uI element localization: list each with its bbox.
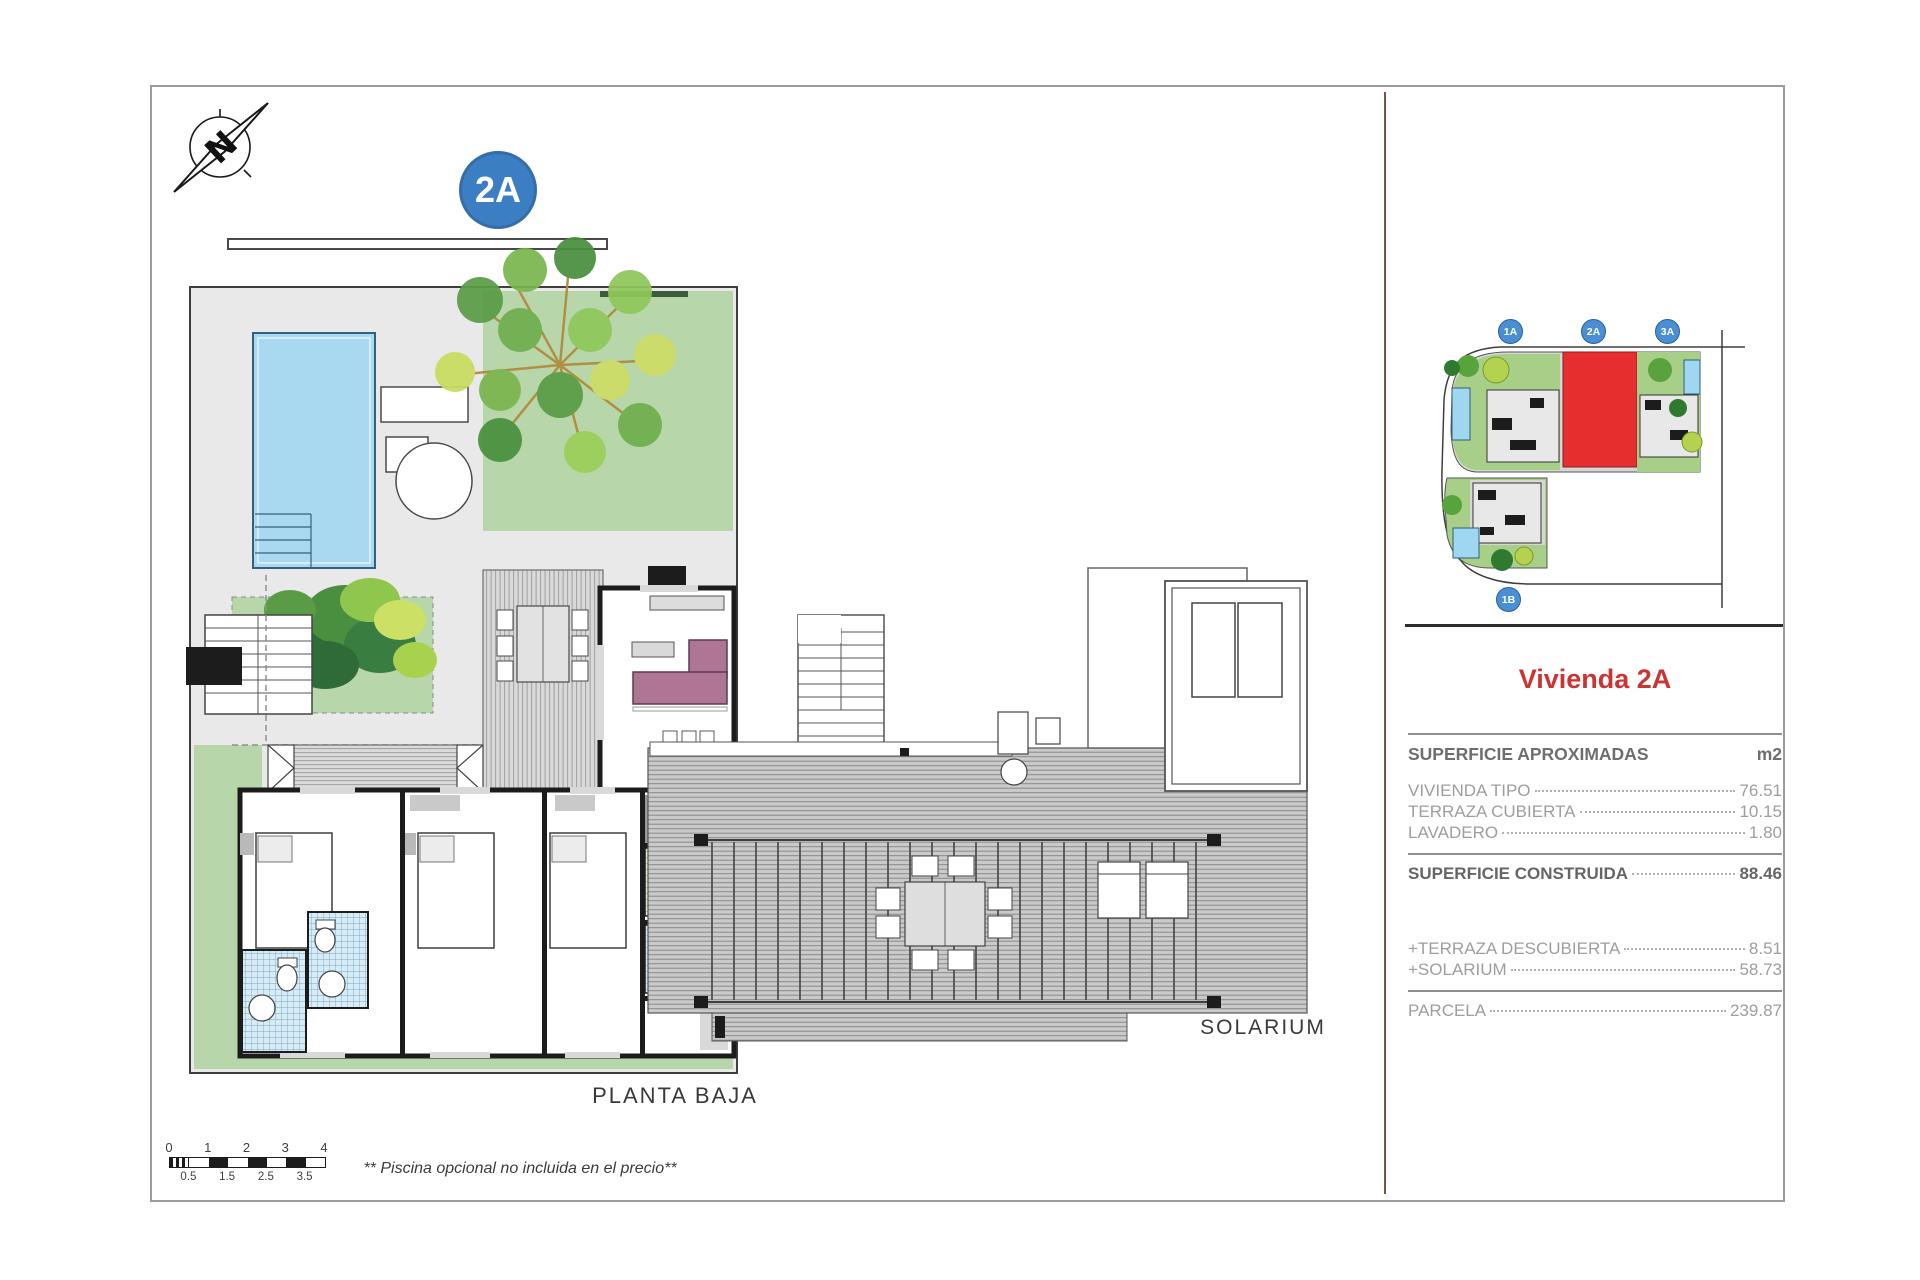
drawing-sheet-page: N 2A: [0, 0, 1920, 1280]
exterior-stairs: [186, 615, 312, 714]
stair-bulkhead: [1165, 581, 1307, 791]
window: [1192, 603, 1235, 697]
tree: [1515, 547, 1533, 565]
scale-subtick: 0.5: [180, 1171, 196, 1183]
bathroom: [308, 912, 368, 1008]
scale-tick: 3: [282, 1140, 289, 1155]
wardrobe: [410, 795, 460, 811]
table-row: +TERRAZA DESCUBIERTA 8.51: [1408, 938, 1782, 959]
pool-1b: [1453, 528, 1479, 558]
panel-separator: [1405, 624, 1783, 627]
table-divider: [1408, 853, 1782, 855]
deck-edge: [650, 742, 1012, 756]
table-row: TERRAZA CUBIERTA 10.15: [1408, 801, 1782, 822]
site-badge-label: 2A: [1587, 326, 1600, 338]
surfaces-table-header: SUPERFICIE APROXIMADAS m2: [1408, 733, 1782, 780]
scale-subtick: 1.5: [219, 1171, 235, 1183]
window: [1238, 603, 1282, 697]
table-row-total: SUPERFICIE CONSTRUIDA 88.46: [1408, 863, 1782, 884]
bed: [405, 833, 494, 948]
tree: [1457, 355, 1479, 377]
site-badge-label: 1A: [1504, 326, 1517, 338]
tree: [1483, 357, 1509, 383]
solarium-plan: [648, 568, 1307, 1041]
scale-subtick: 3.5: [297, 1171, 313, 1183]
scale-tick: 2: [243, 1140, 250, 1155]
surfaces-header-label: SUPERFICIE APROXIMADAS: [1408, 744, 1649, 765]
site-badge-3a: 3A: [1655, 319, 1680, 344]
site-badge-label: 1B: [1502, 594, 1515, 606]
floorplan-drawing: [184, 230, 1314, 1075]
table-row: PARCELA 239.87: [1408, 1000, 1782, 1021]
site-plan: [1435, 258, 1745, 608]
pool-3a: [1684, 360, 1700, 394]
garden-table: [396, 443, 472, 519]
unit-badge-label: 2A: [475, 169, 521, 211]
north-arrow-icon: N: [158, 95, 288, 207]
site-badge-label: 3A: [1661, 326, 1674, 338]
window: [596, 645, 604, 740]
table-row: VIVIENDA TIPO 76.51: [1408, 780, 1782, 801]
surfaces-table: SUPERFICIE APROXIMADAS m2 VIVIENDA TIPO …: [1408, 733, 1782, 1021]
bathroom: [242, 950, 306, 1052]
swimming-pool: [253, 333, 375, 568]
scale-tick: 1: [204, 1140, 211, 1155]
panel-title: Vivienda 2A: [1420, 664, 1770, 695]
tv-cabinet: [632, 642, 674, 657]
scale-tick: 4: [320, 1140, 327, 1155]
tree: [1669, 399, 1687, 417]
pool-disclaimer-note: ** Piscina opcional no incluida en el pr…: [355, 1160, 685, 1178]
site-badge-1b: 1B: [1496, 587, 1521, 612]
scale-tick: 0: [165, 1140, 172, 1155]
tree: [1442, 495, 1462, 515]
scale-bar: 0 1 2 3 4 0.5 1.5 2.5 3.5: [163, 1140, 338, 1192]
tree: [1648, 358, 1672, 382]
pool-1a: [1452, 388, 1470, 440]
sideboard: [650, 596, 724, 610]
deck-step: [712, 1013, 1127, 1041]
outdoor-dining-set: [497, 606, 588, 682]
window: [640, 585, 698, 592]
table-row: LAVADERO 1.80: [1408, 822, 1782, 843]
site-badge-1a: 1A: [1498, 319, 1523, 344]
table-row: +SOLARIUM 58.73: [1408, 959, 1782, 980]
plot-2a-highlight: [1563, 352, 1637, 467]
tree: [1444, 360, 1460, 376]
tree: [1491, 549, 1513, 571]
surfaces-header-unit: m2: [1757, 744, 1782, 765]
panel-divider-line: [1384, 92, 1386, 1194]
scale-subtick: 2.5: [258, 1171, 274, 1183]
sun-lounger: [381, 387, 468, 422]
scale-bar-segments: [169, 1157, 326, 1168]
solarium-label: SOLARIUM: [1163, 1016, 1363, 1040]
unit-badge: 2A: [459, 151, 537, 229]
planta-baja-label: PLANTA BAJA: [560, 1083, 790, 1109]
tree: [1682, 432, 1702, 452]
covered-walk-deck: [268, 745, 483, 792]
wardrobe: [555, 795, 595, 811]
site-badge-2a: 2A: [1581, 319, 1606, 344]
table-divider: [1408, 990, 1782, 992]
bed: [550, 833, 626, 948]
